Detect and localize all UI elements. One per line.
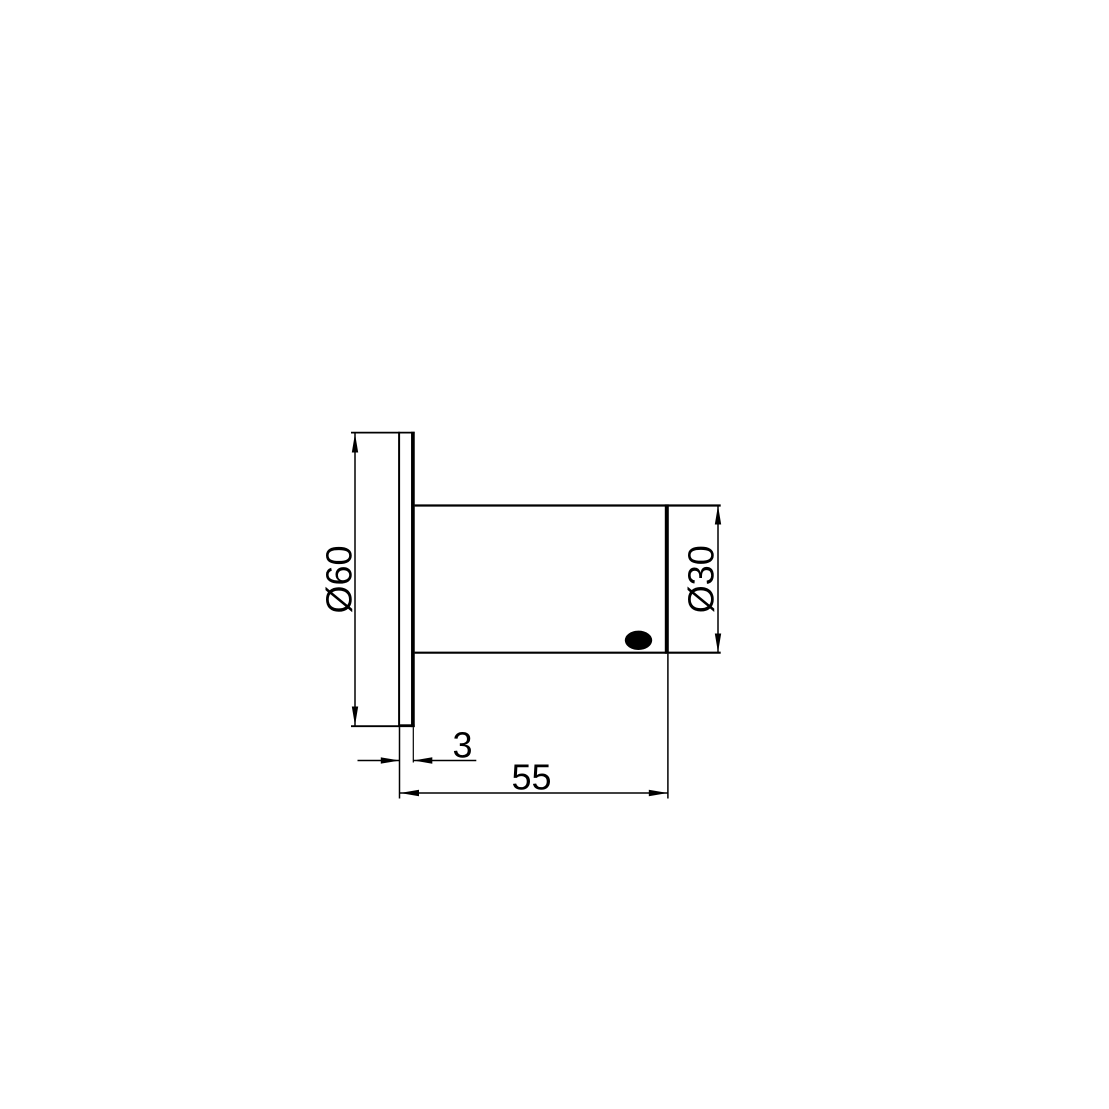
svg-text:Ø30: Ø30 xyxy=(681,545,722,613)
svg-text:Ø60: Ø60 xyxy=(319,545,360,613)
svg-text:3: 3 xyxy=(452,725,472,766)
svg-text:55: 55 xyxy=(511,757,551,798)
